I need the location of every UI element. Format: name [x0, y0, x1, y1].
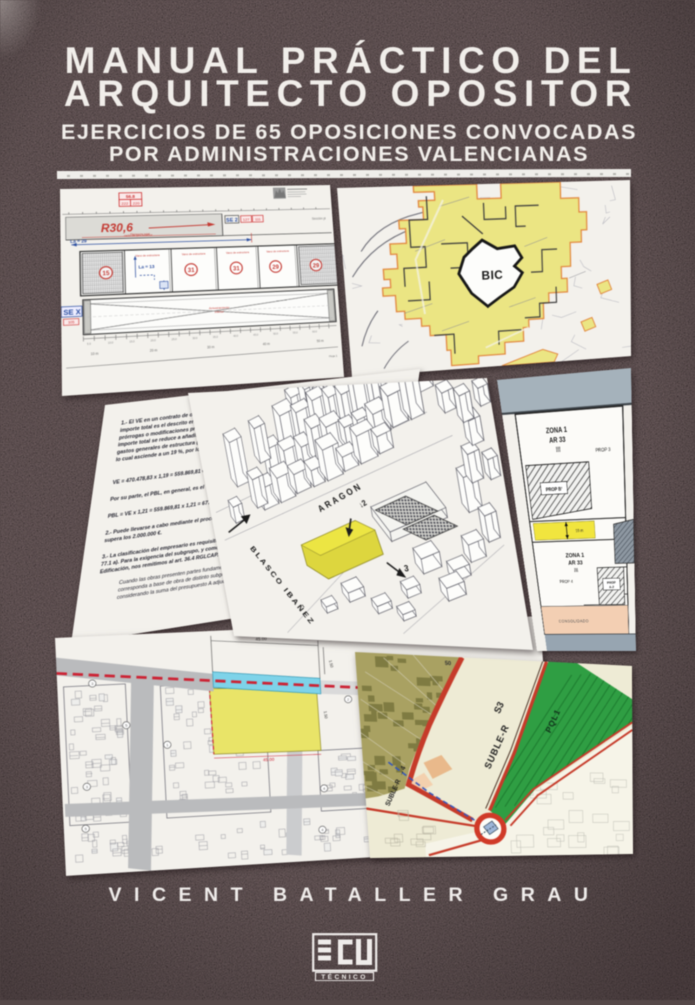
svg-text:29: 29 [272, 265, 279, 271]
svg-text:55.0: 55.0 [293, 331, 299, 334]
svg-text:↓2: ↓2 [357, 498, 369, 510]
svg-text:20 m: 20 m [150, 348, 158, 353]
svg-text:PROP 4: PROP 4 [559, 579, 573, 584]
svg-text:Distancia total: Distancia total [130, 232, 150, 236]
svg-text:ARAGON: ARAGON [316, 481, 365, 515]
svg-text:La = 13: La = 13 [138, 264, 155, 269]
svg-text:5.0: 5.0 [87, 343, 91, 346]
svg-text:111: 111 [255, 217, 262, 222]
svg-text:1.50: 1.50 [328, 660, 335, 669]
svg-text:19 m: 19 m [575, 529, 583, 534]
svg-text:ZONA 1: ZONA 1 [545, 425, 567, 435]
svg-text:III: III [574, 567, 579, 574]
svg-text:20.0: 20.0 [151, 339, 157, 342]
svg-text:10.0: 10.0 [108, 341, 114, 344]
svg-text:222: 222 [121, 201, 129, 206]
svg-text:SE X: SE X [63, 309, 81, 317]
svg-text:29: 29 [313, 263, 320, 269]
svg-text:La = 29: La = 29 [70, 238, 87, 243]
svg-text:50.0: 50.0 [273, 333, 279, 336]
svg-text:CONSOLIDADO: CONSOLIDADO [558, 619, 589, 624]
svg-text:45.0: 45.0 [253, 334, 259, 337]
svg-text:10 m: 10 m [91, 352, 99, 357]
svg-text:PROP B’: PROP B’ [546, 486, 563, 492]
svg-text:40.0: 40.0 [233, 335, 239, 338]
svg-text:127: 127 [243, 217, 250, 222]
svg-text:Sección pl: Sección pl [312, 217, 326, 221]
svg-text:inferior: inferior [215, 310, 224, 314]
svg-text:50: 50 [445, 661, 452, 667]
svg-text:1.50: 1.50 [323, 711, 329, 720]
svg-text:25.0: 25.0 [172, 338, 178, 341]
svg-text:40 m: 40 m [263, 342, 271, 346]
svg-text:Vano de estructura: Vano de estructura [266, 249, 289, 253]
svg-text:A-2: A-2 [609, 586, 614, 590]
svg-text:35.0: 35.0 [213, 336, 219, 339]
svg-text:III: III [555, 446, 561, 455]
svg-text:BIC: BIC [481, 267, 503, 282]
svg-text:220: 220 [133, 201, 141, 206]
svg-text:50 m: 50 m [317, 339, 324, 343]
svg-text:PROP 3: PROP 3 [595, 447, 610, 453]
svg-text:105: 105 [68, 320, 74, 324]
svg-text:Vano de estructura: Vano de estructura [226, 250, 250, 255]
svg-text:56.8: 56.8 [126, 194, 136, 199]
svg-text:Hoja 1: Hoja 1 [329, 354, 338, 358]
svg-text:45.00: 45.00 [263, 757, 275, 763]
svg-text:3: 3 [403, 564, 409, 574]
svg-text:AR 33: AR 33 [549, 435, 566, 445]
svg-text:60.0: 60.0 [312, 330, 317, 333]
svg-text:15: 15 [102, 271, 110, 277]
svg-text:30 m: 30 m [207, 345, 215, 349]
svg-text:SE 2: SE 2 [226, 218, 238, 224]
svg-text:ZONA 1: ZONA 1 [565, 552, 584, 559]
svg-text:AR 33: AR 33 [568, 560, 583, 567]
svg-text:TÉCNICO: TÉCNICO [321, 972, 367, 981]
svg-text:30.0: 30.0 [192, 337, 198, 340]
svg-text:31: 31 [233, 266, 241, 272]
svg-text:PROP: PROP [607, 581, 616, 585]
svg-text:VE = 470.478,83 x 1,19 = 559.8: VE = 470.478,83 x 1,19 = 559.869,81 € [112, 469, 205, 487]
svg-text:Vano de estructura: Vano de estructura [135, 253, 160, 258]
svg-text:31: 31 [188, 268, 196, 274]
svg-text:15.0: 15.0 [129, 340, 135, 343]
svg-text:Vano de estructura: Vano de estructura [182, 252, 206, 257]
